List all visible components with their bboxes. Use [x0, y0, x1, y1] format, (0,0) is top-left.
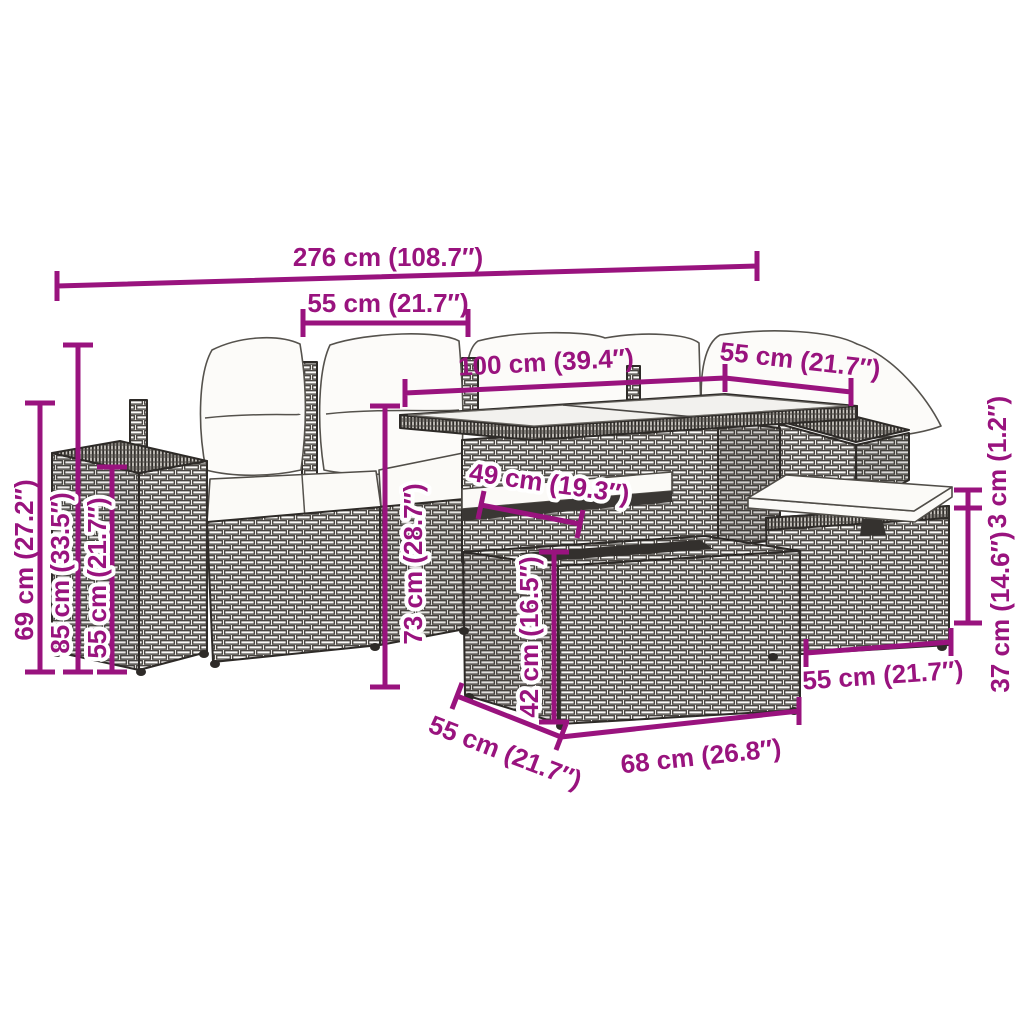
dim-table-height-label: 73 cm (28.7″): [398, 483, 428, 644]
dim-left-seat-width-label: 55 cm (21.7″): [307, 288, 468, 318]
ottoman-front-panel: [558, 551, 800, 724]
dim-stool-height-label: 37 cm (14.6″): [985, 531, 1015, 692]
sofa-left-arm: [52, 441, 207, 670]
dim-ottoman-width-label: 68 cm (26.8″): [619, 733, 783, 780]
product-dimension-image: 276 cm (108.7″) 55 cm (21.7″) 100 cm (39…: [0, 0, 1024, 1024]
dim-stool-width-label: 55 cm (21.7″): [801, 654, 964, 695]
diagram-canvas: 276 cm (108.7″) 55 cm (21.7″) 100 cm (39…: [0, 0, 1024, 1024]
dim-back-height-label: 85 cm (33.5″): [45, 492, 75, 653]
dim-seat-height-label: 69 cm (27.2″): [9, 479, 39, 640]
dim-cushion-thickness-and-stool-height: 3 cm (1.2″) 37 cm (14.6″): [954, 396, 1015, 693]
sofa-front-panel: [207, 507, 380, 662]
dim-arm-height-label: 55 cm (21.7″): [82, 497, 112, 658]
stool-handle: [860, 518, 886, 536]
back-pillow-1: [200, 338, 305, 476]
dim-left-seat-width: 55 cm (21.7″): [303, 288, 469, 337]
dim-cushion-thickness-label: 3 cm (1.2″): [982, 396, 1012, 528]
dim-ottoman-height-label: 42 cm (16.5″): [514, 556, 544, 717]
arm-side-panel: [139, 461, 207, 670]
dim-total-width-label: 276 cm (108.7″): [293, 242, 483, 272]
